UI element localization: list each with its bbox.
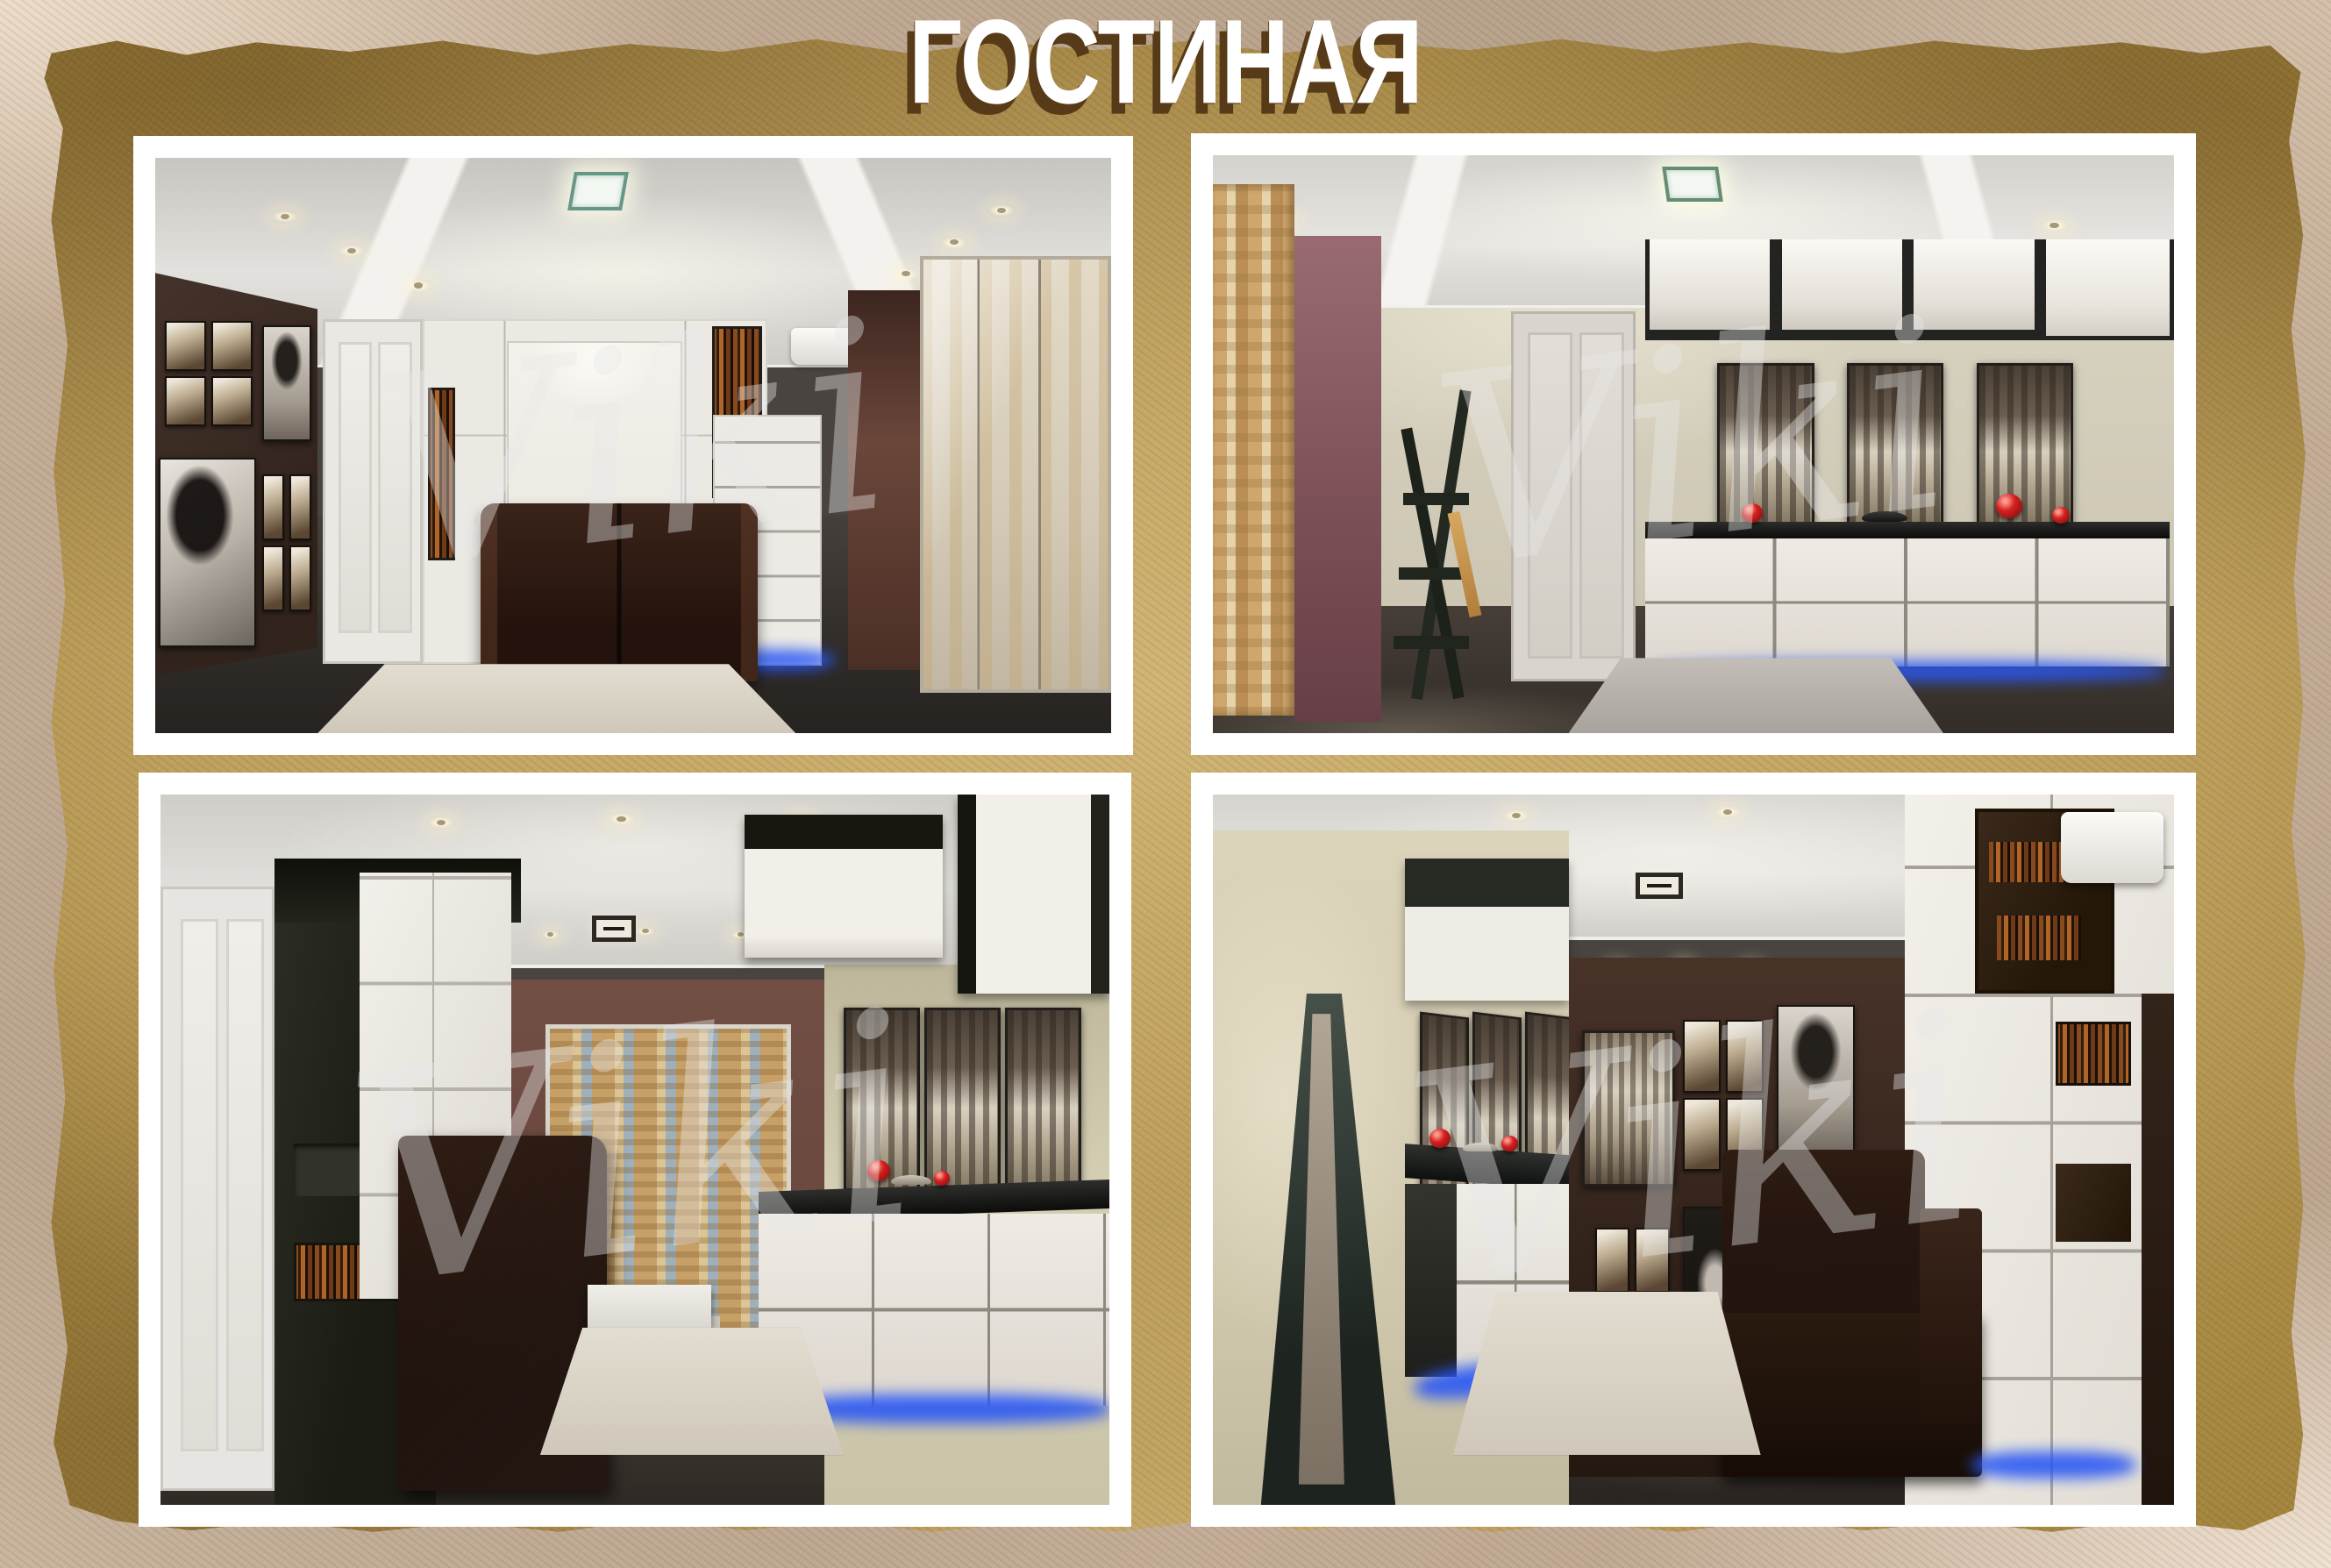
portrait-canvas: [262, 325, 311, 442]
upper-cabinets: [730, 795, 1109, 994]
wall-photo: [1595, 1228, 1629, 1293]
sofa-backrest: [1722, 1150, 1925, 1320]
wall-photo: [211, 376, 253, 426]
ceiling-light-fixture: [567, 172, 629, 210]
wall-photo: [165, 376, 206, 426]
sofa: [481, 503, 758, 681]
wall-photo: [1635, 1228, 1669, 1293]
interior-render-photo-1: Viki: [155, 158, 1111, 733]
render-panel-top-right: Viki: [1191, 133, 2196, 755]
city-canvas: [1847, 363, 1943, 524]
shelf-books: [428, 388, 455, 560]
ceiling-spotlight: [939, 236, 969, 250]
led-strip: [1972, 1451, 2135, 1479]
wall-photo: [165, 321, 206, 371]
ladder-step: [1403, 493, 1468, 505]
hanging-item: [1448, 511, 1482, 617]
sideboard-dark-column: [1405, 1184, 1457, 1377]
interior-render-photo-3: Viki: [160, 795, 1109, 1505]
poster: ГОСТИНАЯ: [0, 0, 2331, 1568]
cabinet-box: [745, 815, 942, 958]
wall-photo: [211, 321, 253, 371]
ladder-step: [1399, 567, 1469, 580]
wall-photo: [289, 545, 311, 611]
render-panel-top-left: Viki: [133, 136, 1133, 755]
sofa: [1722, 1150, 1982, 1477]
city-canvas: [1005, 1008, 1081, 1191]
red-decor-ball: [1501, 1136, 1518, 1151]
ceiling-spotlight: [403, 279, 433, 293]
city-canvas: [1582, 1030, 1675, 1186]
ceiling-light-fixture: [1662, 167, 1723, 202]
interior-render-photo-4: Viki: [1213, 795, 2174, 1505]
shelf-books: [2056, 1022, 2131, 1086]
dark-wood-flank: [2142, 994, 2174, 1505]
ladder-shelf: [1381, 387, 1506, 699]
rug: [1453, 1292, 1761, 1455]
red-decor-ball: [1742, 503, 1763, 523]
city-canvas: [1977, 363, 2073, 524]
wall-photo: [289, 474, 311, 540]
red-decor-ball: [2052, 507, 2070, 524]
wall-photo: [262, 474, 284, 540]
cabinet-door: [1650, 239, 1770, 331]
sideboard-top: [1645, 522, 2169, 538]
photo-cluster: [165, 321, 253, 425]
dark-cabinet-square: [2056, 1164, 2131, 1242]
ceiling-light-fixture: [592, 916, 636, 942]
wall-photo: [1726, 1020, 1764, 1093]
ceiling-spotlight: [270, 210, 300, 224]
left-accent-wall: [155, 273, 317, 675]
ceiling-spotlight: [635, 926, 656, 937]
shelf-books: [1997, 916, 2081, 960]
upper-cabinets: [1645, 239, 2174, 340]
upper-cabinet: [1405, 859, 1568, 1001]
sideboard-drawers: [1645, 538, 2169, 667]
wall-photo: [1683, 1098, 1721, 1171]
cabinet-box: [958, 795, 1109, 994]
door-panel: [1579, 332, 1624, 659]
white-door: [160, 887, 274, 1491]
window: [920, 256, 1111, 694]
portrait-canvas: [1777, 1005, 1854, 1158]
ceiling-spotlight: [607, 812, 637, 826]
door-panel: [226, 919, 264, 1451]
mauve-wall-panel: [1294, 236, 1381, 722]
photo-cluster: [262, 474, 311, 611]
render-panel-bottom-right: Viki: [1191, 773, 2196, 1527]
rug: [540, 1328, 844, 1456]
rug: [317, 664, 795, 733]
decor-dish: [1463, 1143, 1498, 1151]
ceiling-spotlight: [540, 930, 561, 940]
cabinet-door: [2046, 239, 2170, 337]
ceiling-spotlight: [1713, 805, 1743, 819]
ladder-step: [1394, 636, 1468, 648]
photo-cluster: [1683, 1020, 1764, 1170]
door-panel: [1528, 332, 1572, 659]
wall-photo: [262, 545, 284, 611]
ceiling-light-fixture: [1636, 873, 1683, 899]
coffee-table: [588, 1285, 711, 1331]
ceiling-spotlight: [891, 267, 921, 282]
sofa-armrest: [1920, 1208, 1982, 1424]
city-canvas: [1717, 363, 1814, 524]
city-canvas: [924, 1008, 1001, 1191]
decor-bowl: [1862, 511, 1907, 522]
mirror-glass: [1299, 1014, 1344, 1485]
white-door: [323, 319, 423, 665]
wall-photo: [1683, 1020, 1721, 1093]
cabinet-door: [1914, 239, 2034, 331]
brown-wall-column: [848, 290, 920, 670]
door-panel: [378, 342, 412, 633]
door-panel: [181, 919, 218, 1451]
white-door: [1511, 311, 1636, 681]
curtain-window: [1213, 184, 1294, 716]
large-bw-portrait: [159, 458, 256, 646]
door-panel: [339, 342, 373, 633]
sideboard: [1645, 522, 2169, 666]
shelf-books: [1989, 842, 2066, 882]
cabinet-door: [1782, 239, 1902, 331]
air-conditioner: [2061, 812, 2163, 883]
rug: [1569, 658, 1943, 733]
decor-dish: [891, 1175, 931, 1185]
ceiling-spotlight: [1501, 809, 1531, 823]
red-decor-ball: [1429, 1129, 1451, 1148]
render-panel-bottom-left: Viki: [139, 773, 1131, 1527]
poster-title: ГОСТИНАЯ: [139, 2, 2191, 122]
interior-render-photo-2: Viki: [1213, 155, 2174, 733]
